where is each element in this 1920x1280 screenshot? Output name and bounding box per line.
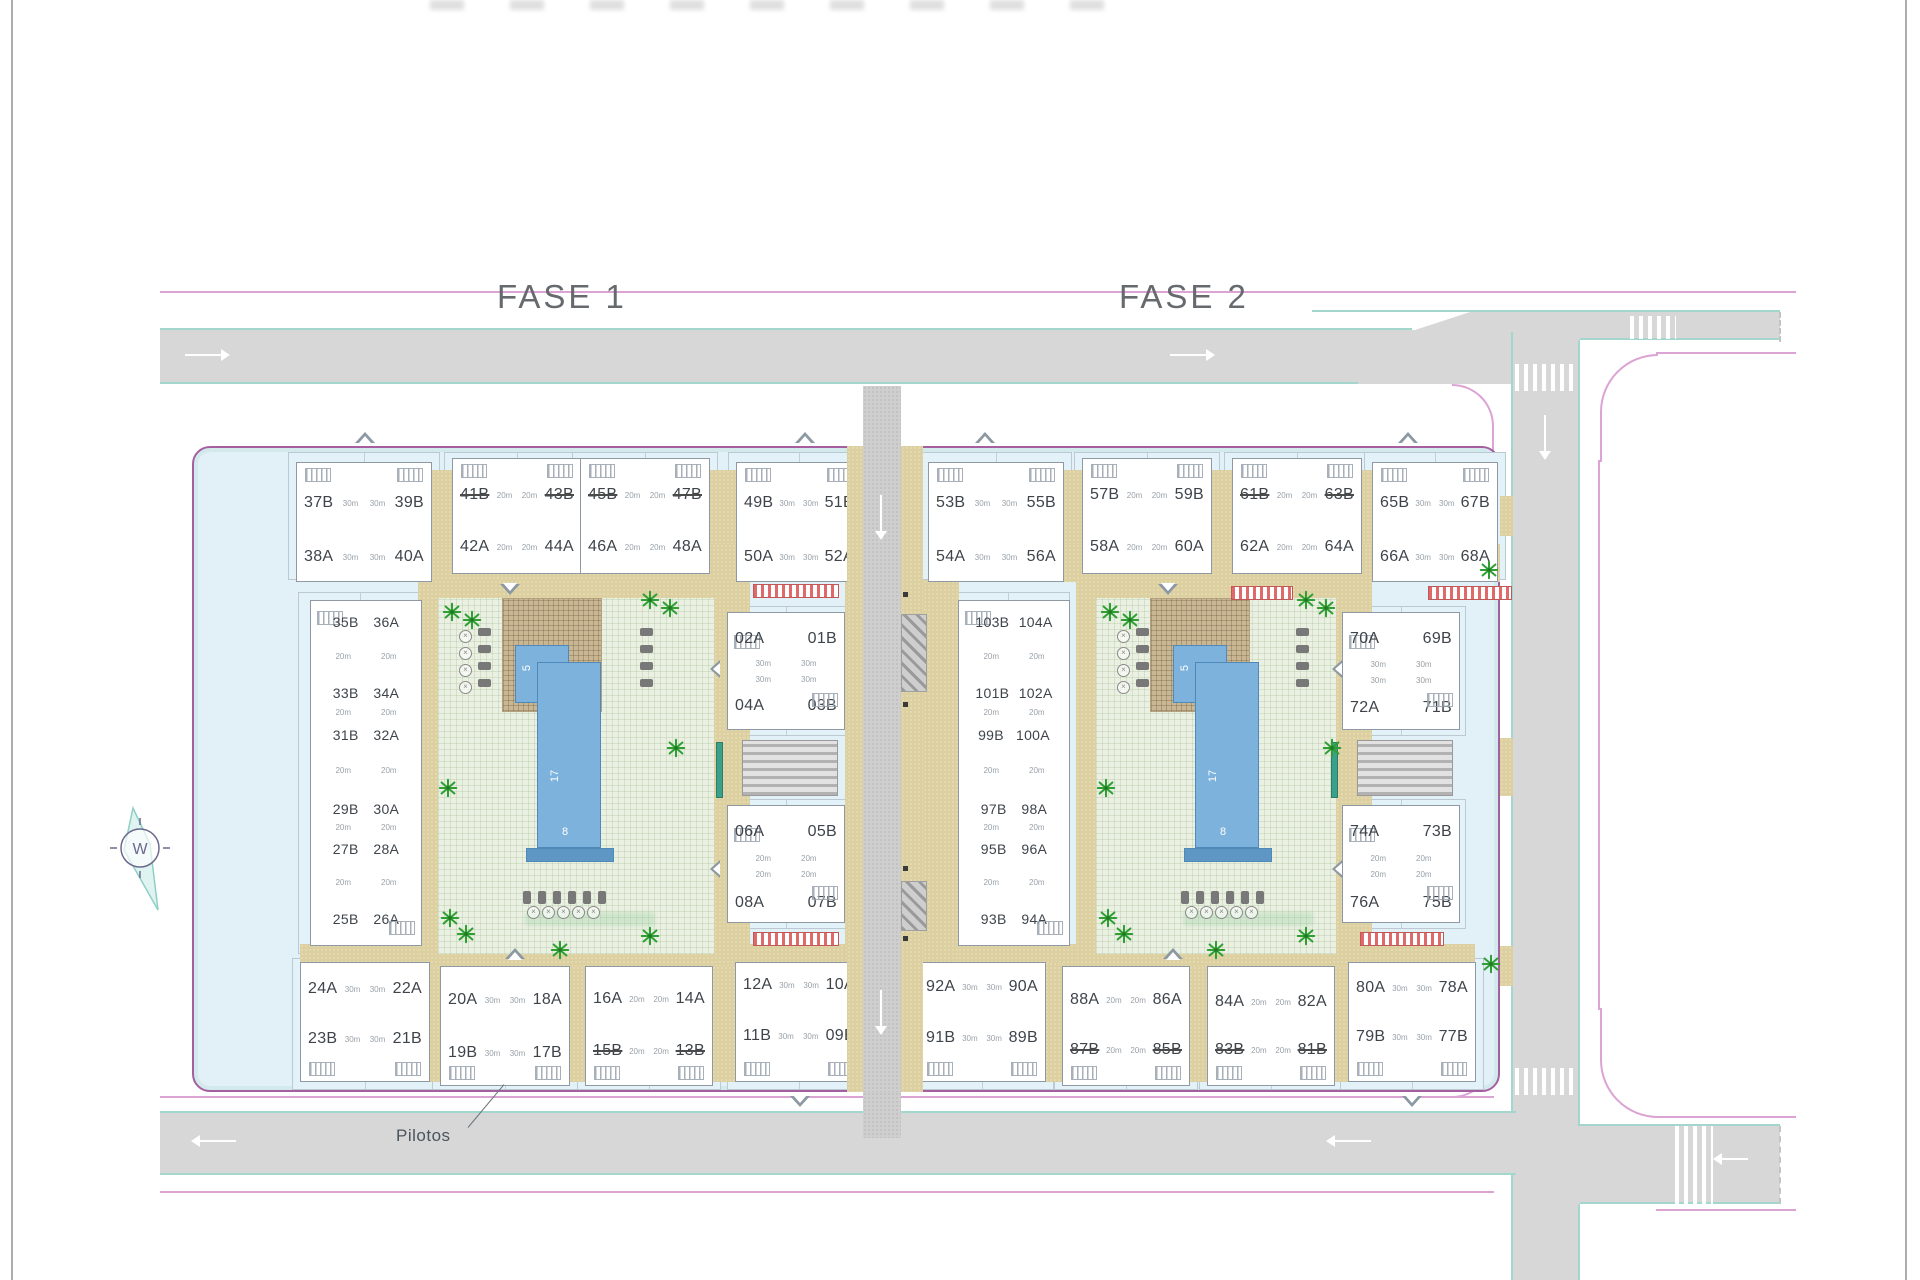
- building-block-f1t3: 45B20m20m47B46A20m20m48A: [580, 458, 710, 574]
- area-mark: 30m: [343, 499, 359, 508]
- area-mark: 30m: [485, 1049, 501, 1058]
- sun-lounger-icon: [553, 891, 561, 904]
- unit-label: 28A: [373, 841, 399, 857]
- area-mark: 20m: [1029, 766, 1045, 775]
- sun-lounger-icon: [1296, 628, 1309, 636]
- sun-lounger-icon: [640, 679, 653, 687]
- area-mark: 30m: [1370, 660, 1386, 669]
- pergola: [1231, 586, 1293, 600]
- building-block-f1b1: 24A30m30m22A23B30m30m21B: [300, 962, 430, 1082]
- unit-label: 98A: [1021, 801, 1047, 817]
- unit-label: 66A: [1380, 548, 1409, 566]
- building-block-f1t1: 37B30m30m39B38A30m30m40A: [296, 462, 432, 582]
- area-mark: 30m: [1416, 984, 1432, 993]
- unit-label: 101B: [975, 685, 1009, 701]
- parasol-icon: ×: [1117, 664, 1130, 677]
- unit-label: 57B: [1090, 486, 1119, 504]
- area-mark: 20m: [755, 870, 771, 879]
- unit-label: 59B: [1175, 486, 1204, 504]
- pergola: [1360, 932, 1444, 946]
- pool-dimension: 5: [1179, 665, 1191, 671]
- area-mark: 30m: [801, 659, 817, 668]
- unit-label: 11B: [743, 1027, 771, 1045]
- pergola: [753, 584, 839, 598]
- area-mark: 20m: [629, 995, 645, 1004]
- pool-dimension: 5: [521, 665, 533, 671]
- unit-label: 42A: [460, 538, 489, 556]
- bollard-icon: [903, 592, 908, 597]
- building-block-f1m1: 02A01B04A03B30m30m30m30m: [727, 612, 845, 730]
- area-mark: 30m: [345, 1035, 361, 1044]
- area-mark: 20m: [653, 995, 669, 1004]
- unit-label: 41B: [460, 486, 489, 504]
- area-mark: 30m: [510, 1049, 526, 1058]
- frame-line-left: [11, 0, 13, 1280]
- unit-label: 05B: [808, 823, 837, 841]
- unit-label: 103B: [975, 614, 1009, 630]
- traffic-arrow-right-icon: [1170, 354, 1206, 356]
- area-mark: 30m: [1392, 1033, 1408, 1042]
- area-mark: 30m: [755, 659, 771, 668]
- unit-label: 89B: [1009, 1029, 1038, 1047]
- pergola: [1428, 586, 1512, 600]
- area-mark: 30m: [778, 1032, 794, 1041]
- unit-label: 46A: [588, 538, 617, 556]
- bollard-icon: [903, 702, 908, 707]
- unit-label: 25B: [333, 911, 359, 927]
- area-mark: 20m: [755, 854, 771, 863]
- unit-label: 04A: [735, 697, 764, 715]
- palm-tree-icon: [1095, 777, 1117, 799]
- unit-label: 92A: [926, 978, 955, 996]
- palm-tree-icon: [659, 597, 681, 619]
- unit-label: 33B: [333, 685, 359, 701]
- building-block-f1col: 35B36A33B34A31B32A29B30A27B28A25B26A20m2…: [310, 600, 422, 946]
- unit-label: 60A: [1175, 538, 1204, 556]
- bottom-road-edge: [160, 1173, 1516, 1175]
- top-road-edge: [1580, 338, 1780, 340]
- area-mark: 30m: [986, 1034, 1002, 1043]
- unit-label: 14A: [676, 990, 705, 1008]
- unit-label: 85B: [1153, 1041, 1182, 1059]
- unit-label: 104A: [1019, 614, 1053, 630]
- central-road-paving: [847, 446, 863, 1092]
- paving: [568, 962, 586, 1082]
- area-mark: 20m: [625, 491, 641, 500]
- area-mark: 20m: [1277, 543, 1293, 552]
- area-mark: 20m: [335, 652, 351, 661]
- traffic-arrow-right-icon: [185, 354, 221, 356]
- area-mark: 20m: [983, 708, 999, 717]
- phase1-entrance-stairs: [742, 740, 838, 796]
- road-boundary-curve: [1452, 384, 1494, 430]
- area-mark: 30m: [485, 996, 501, 1005]
- phase2-pool: [1195, 662, 1259, 848]
- entrance-marker-icon: [1401, 436, 1415, 444]
- area-mark: 20m: [1029, 652, 1045, 661]
- unit-label: 35B: [333, 614, 359, 630]
- parasol-icon: ×: [1215, 906, 1228, 919]
- palm-tree-icon: [1478, 559, 1500, 581]
- area-mark: 20m: [335, 708, 351, 717]
- unit-label: 87B: [1070, 1041, 1099, 1059]
- building-block-f2b2: 88A20m20m86A87B20m20m85B: [1062, 966, 1190, 1086]
- area-mark: 30m: [779, 553, 795, 562]
- paving: [1362, 470, 1372, 544]
- area-mark: 30m: [370, 499, 386, 508]
- palm-tree-icon: [437, 777, 459, 799]
- unit-label: 50A: [744, 548, 773, 566]
- sun-lounger-icon: [1296, 662, 1309, 670]
- unit-label: 96A: [1021, 841, 1047, 857]
- area-mark: 30m: [370, 553, 386, 562]
- area-mark: 30m: [803, 499, 819, 508]
- unit-label: 56A: [1027, 548, 1056, 566]
- area-mark: 20m: [1302, 543, 1318, 552]
- pool-dimension: 17: [1207, 770, 1219, 782]
- area-mark: 30m: [1416, 676, 1432, 685]
- sun-lounger-icon: [640, 662, 653, 670]
- area-mark: 20m: [983, 766, 999, 775]
- parasol-icon: ×: [527, 906, 540, 919]
- area-mark: 20m: [1275, 998, 1291, 1007]
- area-mark: 20m: [1127, 543, 1143, 552]
- unit-label: 07B: [808, 894, 837, 912]
- sun-lounger-icon: [1296, 679, 1309, 687]
- area-mark: 20m: [381, 766, 397, 775]
- area-mark: 30m: [343, 553, 359, 562]
- area-mark: 30m: [803, 981, 819, 990]
- crosswalk-right-road-top: [1515, 364, 1576, 391]
- unit-label: 63B: [1325, 486, 1354, 504]
- building-block-f2m2: 74A73B76A75B20m20m20m20m: [1342, 805, 1460, 923]
- area-mark: 30m: [975, 553, 991, 562]
- palm-tree-icon: [441, 601, 463, 623]
- area-mark: 30m: [345, 985, 361, 994]
- cropped-text-smudge: [430, 0, 1120, 10]
- area-mark: 30m: [755, 675, 771, 684]
- unit-label: 31B: [333, 727, 359, 743]
- paving: [1212, 470, 1232, 544]
- unit-label: 24A: [308, 980, 337, 998]
- entrance-marker-icon: [508, 952, 522, 960]
- unit-label: 36A: [373, 614, 399, 630]
- area-mark: 30m: [1392, 984, 1408, 993]
- parasol-icon: ×: [1200, 906, 1213, 919]
- unit-label: 44A: [545, 538, 574, 556]
- parasol-icon: ×: [1185, 906, 1198, 919]
- traffic-arrow-down-icon: [880, 495, 882, 531]
- area-mark: 20m: [650, 543, 666, 552]
- road-edge-dashes: [1779, 312, 1781, 342]
- entrance-marker-icon: [358, 436, 372, 444]
- unit-label: 78A: [1439, 979, 1468, 997]
- compass-icon: W: [100, 806, 186, 914]
- central-road-surface: [863, 446, 901, 1092]
- parasol-icon: ×: [459, 664, 472, 677]
- area-mark: 30m: [803, 553, 819, 562]
- crosswalk-top-road: [1630, 316, 1676, 339]
- parasol-icon: ×: [459, 681, 472, 694]
- sun-lounger-icon: [1181, 891, 1189, 904]
- area-mark: 20m: [1127, 491, 1143, 500]
- unit-label: 49B: [744, 494, 773, 512]
- sun-lounger-icon: [598, 891, 606, 904]
- road-boundary-curve: [1600, 1008, 1658, 1118]
- phase2-entrance-stairs: [1357, 740, 1453, 796]
- building-block-f1b2: 20A30m30m18A19B30m30m17B: [440, 966, 570, 1086]
- unit-label: 43B: [545, 486, 574, 504]
- unit-label: 20A: [448, 991, 477, 1009]
- phase1-title: FASE 1: [497, 278, 627, 316]
- area-mark: 20m: [629, 1047, 645, 1056]
- area-mark: 30m: [1439, 553, 1455, 562]
- area-mark: 20m: [1106, 996, 1122, 1005]
- unit-label: 74A: [1350, 823, 1379, 841]
- unit-label: 81B: [1298, 1041, 1327, 1059]
- parasol-icon: ×: [459, 630, 472, 643]
- area-mark: 20m: [381, 708, 397, 717]
- sun-lounger-icon: [1136, 662, 1149, 670]
- frame-line-right: [1905, 0, 1907, 1280]
- entrance-marker-icon: [713, 663, 720, 675]
- area-mark: 20m: [983, 878, 999, 887]
- sun-lounger-icon: [1296, 645, 1309, 653]
- entrance-marker-icon: [1166, 952, 1180, 960]
- phase1-pool: [537, 662, 601, 848]
- pool-dimension: 8: [562, 826, 568, 838]
- bottom-road-boundary-line: [160, 1191, 1494, 1193]
- parasol-icon: ×: [572, 906, 585, 919]
- bottom-road-right-segment: [1516, 1126, 1780, 1204]
- area-mark: 30m: [1415, 553, 1431, 562]
- area-mark: 20m: [1130, 996, 1146, 1005]
- sun-lounger-icon: [478, 679, 491, 687]
- entrance-marker-icon: [1335, 663, 1342, 675]
- area-mark: 30m: [962, 983, 978, 992]
- palm-tree-icon: [1295, 925, 1317, 947]
- palm-tree-icon: [1315, 597, 1337, 619]
- unit-label: 93B: [981, 911, 1007, 927]
- area-mark: 20m: [335, 878, 351, 887]
- palm-tree-icon: [1480, 953, 1502, 975]
- area-mark: 20m: [1277, 491, 1293, 500]
- paving: [712, 962, 736, 1082]
- area-mark: 30m: [1370, 676, 1386, 685]
- building-block-f1t4: 49B30m30m51B50A30m30m52A: [736, 462, 862, 582]
- area-mark: 20m: [1029, 823, 1045, 832]
- sun-lounger-icon: [568, 891, 576, 904]
- palm-tree-icon: [549, 939, 571, 961]
- unit-label: 02A: [735, 630, 764, 648]
- unit-label: 70A: [1350, 630, 1379, 648]
- area-mark: 20m: [801, 854, 817, 863]
- building-block-f1b3: 16A20m20m14A15B20m20m13B: [585, 966, 713, 1086]
- bottom-road-surface: [160, 1113, 1516, 1175]
- unit-label: 65B: [1380, 494, 1409, 512]
- pergola: [753, 932, 839, 946]
- area-mark: 30m: [1002, 499, 1018, 508]
- parasol-icon: ×: [587, 906, 600, 919]
- entrance-marker-icon: [978, 436, 992, 444]
- unit-label: 80A: [1356, 979, 1385, 997]
- area-mark: 20m: [983, 823, 999, 832]
- palm-tree-icon: [665, 737, 687, 759]
- unit-label: 48A: [673, 538, 702, 556]
- area-mark: 20m: [1130, 1046, 1146, 1055]
- area-mark: 20m: [983, 652, 999, 661]
- area-mark: 20m: [522, 543, 538, 552]
- sun-lounger-icon: [1211, 891, 1219, 904]
- unit-label: 102A: [1019, 685, 1053, 701]
- palm-tree-icon: [1295, 589, 1317, 611]
- area-mark: 20m: [1275, 1046, 1291, 1055]
- road-boundary-line: [1656, 352, 1796, 354]
- unit-label: 30A: [373, 801, 399, 817]
- paving: [1064, 470, 1082, 544]
- area-mark: 30m: [1416, 660, 1432, 669]
- building-block-f2b4: 80A30m30m78A79B30m30m77B: [1348, 962, 1476, 1082]
- area-mark: 30m: [370, 985, 386, 994]
- area-mark: 30m: [370, 1035, 386, 1044]
- unit-label: 58A: [1090, 538, 1119, 556]
- area-mark: 20m: [1416, 870, 1432, 879]
- unit-label: 61B: [1240, 486, 1269, 504]
- crosswalk-bottom-road: [1675, 1126, 1713, 1204]
- unit-label: 29B: [333, 801, 359, 817]
- area-mark: 20m: [1152, 491, 1168, 500]
- site-plan-drawing: FASE 1 FASE 2: [0, 0, 1920, 1280]
- area-mark: 30m: [779, 981, 795, 990]
- parasol-icon: ×: [1230, 906, 1243, 919]
- road-boundary-line: [1598, 460, 1600, 1010]
- unit-label: 15B: [593, 1042, 622, 1060]
- unit-label: 88A: [1070, 991, 1099, 1009]
- unit-label: 84A: [1215, 993, 1244, 1011]
- unit-label: 17B: [533, 1044, 562, 1062]
- central-road-surface: [863, 1092, 901, 1138]
- side-entrance: [1500, 738, 1513, 796]
- unit-label: 19B: [448, 1044, 477, 1062]
- palm-tree-icon: [639, 589, 661, 611]
- unit-label: 67B: [1461, 494, 1490, 512]
- parasol-icon: ×: [1117, 647, 1130, 660]
- traffic-arrow-left-icon: [1335, 1140, 1371, 1142]
- unit-label: 38A: [304, 548, 333, 566]
- unit-label: 82A: [1298, 993, 1327, 1011]
- central-road-paving: [901, 446, 923, 1092]
- unit-label: 34A: [373, 685, 399, 701]
- unit-label: 72A: [1350, 699, 1379, 717]
- unit-label: 100A: [1016, 727, 1050, 743]
- palm-tree-icon: [1099, 601, 1121, 623]
- unit-label: 08A: [735, 894, 764, 912]
- top-road-edge: [160, 382, 1358, 384]
- building-block-f2t2: 57B20m20m59B58A20m20m60A: [1082, 458, 1212, 574]
- entrance-marker-icon: [1161, 583, 1175, 591]
- unit-label: 94A: [1021, 911, 1047, 927]
- area-mark: 20m: [625, 543, 641, 552]
- central-road-parking: [901, 881, 927, 931]
- traffic-arrow-down-icon: [1544, 415, 1546, 451]
- bottom-road-boundary-line: [1656, 1209, 1796, 1211]
- building-block-f1t2: 41B20m20m43B42A20m20m44A: [452, 458, 582, 574]
- palm-tree-icon: [1205, 939, 1227, 961]
- area-mark: 20m: [381, 823, 397, 832]
- area-mark: 20m: [497, 543, 513, 552]
- sun-lounger-icon: [478, 645, 491, 653]
- palm-tree-icon: [639, 925, 661, 947]
- unit-label: 45B: [588, 486, 617, 504]
- area-mark: 20m: [1251, 998, 1267, 1007]
- sun-lounger-icon: [1136, 645, 1149, 653]
- unit-label: 40A: [395, 548, 424, 566]
- sun-lounger-icon: [538, 891, 546, 904]
- building-block-f2m1: 70A69B72A71B30m30m30m30m: [1342, 612, 1460, 730]
- traffic-arrow-down-icon: [880, 990, 882, 1026]
- unit-label: 64A: [1325, 538, 1354, 556]
- traffic-arrow-left-icon: [1722, 1158, 1748, 1160]
- unit-label: 53B: [936, 494, 965, 512]
- unit-label: 12A: [743, 976, 772, 994]
- unit-label: 16A: [593, 990, 622, 1008]
- building-block-f1b4: 12A30m30m10A11B30m30m09B: [735, 962, 863, 1082]
- parasol-icon: ×: [1117, 681, 1130, 694]
- area-mark: 20m: [801, 870, 817, 879]
- sun-lounger-icon: [640, 628, 653, 636]
- unit-label: 73B: [1423, 823, 1452, 841]
- unit-label: 99B: [978, 727, 1004, 743]
- unit-label: 37B: [304, 494, 333, 512]
- area-mark: 20m: [1416, 854, 1432, 863]
- area-mark: 20m: [381, 878, 397, 887]
- phase1-planter: [716, 742, 723, 798]
- entrance-marker-icon: [713, 863, 720, 875]
- entrance-marker-icon: [793, 1095, 807, 1103]
- unit-label: 01B: [808, 630, 837, 648]
- entrance-marker-icon: [503, 583, 517, 591]
- unit-label: 83B: [1215, 1041, 1244, 1059]
- unit-label: 26A: [373, 911, 399, 927]
- area-mark: 20m: [1370, 870, 1386, 879]
- crosswalk-right-road-bottom: [1515, 1068, 1576, 1095]
- area-mark: 20m: [522, 491, 538, 500]
- compass-letter: W: [132, 841, 148, 858]
- unit-label: 23B: [308, 1030, 337, 1048]
- unit-label: 18A: [533, 991, 562, 1009]
- paving: [1045, 962, 1063, 1082]
- palm-tree-icon: [455, 923, 477, 945]
- entrance-marker-icon: [1335, 863, 1342, 875]
- unit-label: 06A: [735, 823, 764, 841]
- unit-label: 22A: [393, 980, 422, 998]
- sun-lounger-icon: [1241, 891, 1249, 904]
- unit-label: 76A: [1350, 894, 1379, 912]
- parasol-icon: ×: [557, 906, 570, 919]
- sun-lounger-icon: [478, 628, 491, 636]
- area-mark: 20m: [1251, 1046, 1267, 1055]
- area-mark: 20m: [1152, 543, 1168, 552]
- phase2-title: FASE 2: [1119, 278, 1249, 316]
- area-mark: 20m: [1302, 491, 1318, 500]
- traffic-arrow-left-icon: [200, 1140, 236, 1142]
- building-block-f2b3: 84A20m20m82A83B20m20m81B: [1207, 966, 1335, 1086]
- unit-label: 47B: [673, 486, 702, 504]
- unit-label: 55B: [1027, 494, 1056, 512]
- building-block-f2t1: 53B30m30m55B54A30m30m56A: [928, 462, 1064, 582]
- pool-dimension: 17: [549, 770, 561, 782]
- sun-lounger-icon: [478, 662, 491, 670]
